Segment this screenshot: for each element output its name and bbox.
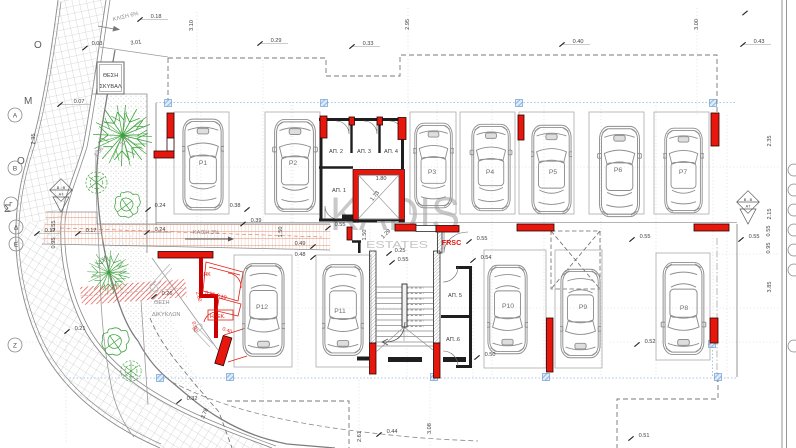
svg-text:Δ: Δ — [14, 224, 19, 231]
svg-text:0.29: 0.29 — [271, 38, 282, 44]
svg-text:ΘΕΣΗ: ΘΕΣΗ — [103, 73, 119, 79]
svg-text:0.25: 0.25 — [395, 248, 406, 254]
svg-text:0.03: 0.03 — [92, 41, 103, 47]
svg-text:0.49: 0.49 — [295, 241, 306, 247]
svg-text:0.52: 0.52 — [645, 339, 656, 345]
svg-text:0.50: 0.50 — [485, 352, 496, 358]
svg-text:0.18: 0.18 — [151, 14, 162, 20]
svg-text:0.21: 0.21 — [75, 326, 86, 332]
svg-text:0.07: 0.07 — [74, 99, 85, 105]
svg-text:ΑΠ. 4: ΑΠ. 4 — [384, 149, 398, 155]
svg-text:ΑΠ..6: ΑΠ..6 — [446, 337, 460, 343]
svg-text:0.51: 0.51 — [639, 433, 650, 439]
svg-text:Β: Β — [13, 165, 17, 172]
svg-text:2.61: 2.61 — [357, 431, 363, 442]
svg-text:2.35: 2.35 — [767, 136, 773, 147]
svg-text:Α7: Α7 — [59, 193, 64, 197]
svg-text:0.40: 0.40 — [573, 39, 584, 45]
svg-text:Β - Β: Β - Β — [744, 198, 753, 202]
svg-text:ΑΠ. 1: ΑΠ. 1 — [332, 188, 346, 194]
svg-text:2.15: 2.15 — [767, 209, 773, 220]
svg-text:2.35: 2.35 — [31, 134, 37, 145]
svg-text:ΣΚΥΒΑΛ: ΣΚΥΒΑΛ — [99, 84, 121, 90]
svg-text:ΔΙΚΥΚΛΩΝ: ΔΙΚΥΚΛΩΝ — [152, 312, 180, 318]
svg-text:Ζ: Ζ — [13, 342, 17, 349]
svg-text:ΑΠ. 2: ΑΠ. 2 — [329, 149, 343, 155]
svg-text:0.44: 0.44 — [387, 429, 398, 435]
svg-text:1.50: 1.50 — [362, 230, 368, 241]
svg-text:0.55: 0.55 — [398, 257, 409, 263]
svg-text:0.55: 0.55 — [749, 234, 760, 240]
svg-text:1.50: 1.50 — [278, 227, 284, 238]
svg-text:P6: P6 — [614, 167, 623, 174]
svg-text:ΑΠ. 3: ΑΠ. 3 — [357, 149, 371, 155]
svg-text:0.38: 0.38 — [230, 203, 241, 209]
svg-text:0.17: 0.17 — [45, 228, 56, 234]
svg-text:Ο: Ο — [34, 40, 42, 51]
svg-text:3.01: 3.01 — [130, 39, 141, 46]
svg-text:0.95: 0.95 — [766, 243, 772, 254]
svg-text:0.54: 0.54 — [481, 255, 492, 261]
svg-text:0.55: 0.55 — [477, 236, 488, 242]
svg-text:0.48: 0.48 — [295, 252, 306, 258]
svg-text:ΚΛΙΣΗ 3%: ΚΛΙΣΗ 3% — [193, 230, 219, 236]
svg-text:0.32: 0.32 — [187, 396, 198, 402]
svg-text:0.55: 0.55 — [335, 222, 346, 228]
svg-text:P1: P1 — [199, 160, 208, 167]
svg-text:0.24: 0.24 — [155, 203, 166, 209]
svg-text:P3: P3 — [428, 169, 437, 176]
svg-text:P9: P9 — [579, 304, 588, 311]
svg-text:Α7: Α7 — [746, 205, 751, 209]
svg-text:3.08: 3.08 — [427, 423, 433, 434]
svg-text:Μ: Μ — [24, 96, 32, 107]
svg-text:P5: P5 — [549, 169, 558, 176]
svg-text:3.00: 3.00 — [694, 19, 700, 30]
svg-text:0.24: 0.24 — [155, 227, 166, 233]
svg-text:P7: P7 — [679, 169, 688, 176]
svg-text:P12: P12 — [256, 304, 268, 311]
svg-text:ΑΠ. 5: ΑΠ. 5 — [448, 293, 462, 299]
svg-text:0.55: 0.55 — [640, 234, 651, 240]
svg-text:0.39: 0.39 — [251, 218, 262, 224]
svg-text:Γ: Γ — [9, 201, 13, 208]
svg-text:ΗΛΕΚ.: ΗΛΕΚ. — [210, 314, 226, 320]
svg-text:Β - Β: Β - Β — [57, 186, 66, 190]
svg-text:ΘΕΣΗ: ΘΕΣΗ — [154, 300, 170, 306]
svg-text:0.33: 0.33 — [363, 41, 374, 47]
svg-text:2.95: 2.95 — [405, 19, 411, 30]
svg-text:3.85: 3.85 — [767, 282, 773, 293]
svg-text:P4: P4 — [486, 169, 495, 176]
svg-text:0.17: 0.17 — [86, 228, 97, 234]
svg-text:P10: P10 — [502, 303, 514, 310]
svg-text:FRSC: FRSC — [442, 238, 462, 247]
svg-text:0.26: 0.26 — [162, 291, 173, 297]
svg-text:Ε: Ε — [14, 241, 18, 248]
svg-text:0.43: 0.43 — [754, 39, 765, 45]
svg-text:P2: P2 — [289, 160, 298, 167]
svg-text:0.55: 0.55 — [766, 226, 772, 237]
svg-text:3.10: 3.10 — [189, 20, 195, 31]
svg-text:Α: Α — [13, 112, 18, 119]
svg-text:P11: P11 — [334, 308, 346, 315]
svg-text:1.80: 1.80 — [376, 176, 387, 182]
svg-text:0.95: 0.95 — [51, 238, 57, 249]
svg-text:ΛΗΚ: ΛΗΚ — [200, 272, 211, 278]
svg-text:P8: P8 — [680, 305, 689, 312]
